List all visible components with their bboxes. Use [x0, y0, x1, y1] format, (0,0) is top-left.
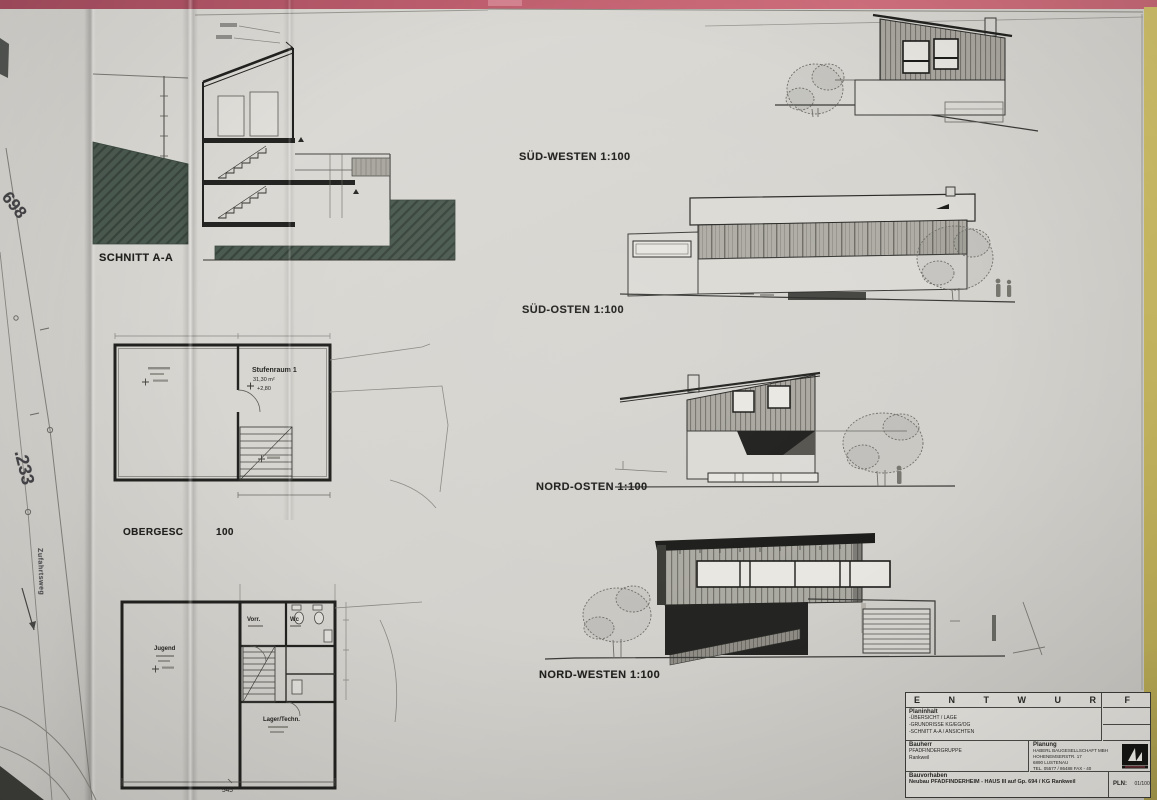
plan-number-label: PLN: — [1110, 780, 1127, 787]
elevation-label-nord-osten: NORD-OSTEN 1:100 — [536, 481, 648, 493]
elevation-label-nord-westen: NORD-WESTEN 1:100 — [539, 669, 660, 681]
client-label: Bauherr — [906, 741, 1028, 748]
plan-content-line: -SCHNITT A-A / ANSICHTEN — [906, 729, 1101, 736]
dimension-545: 545 — [222, 787, 233, 794]
elevation-nord-westen — [545, 525, 1045, 670]
tree-sketch — [786, 64, 844, 117]
elevation-sued-westen — [770, 5, 1040, 140]
plan-content-cell: Planinhalt -ÜBERSICHT / LAGE -GRUNDRISSE… — [906, 708, 1102, 741]
level-marker-icon — [298, 137, 359, 194]
client-city: Rankweil — [906, 755, 1028, 762]
room-level: +2,80 — [257, 386, 271, 392]
plan-number-value: 01/100 — [1131, 781, 1149, 787]
project-label: Bauvorhaben — [906, 772, 1108, 779]
tree-sketch — [843, 413, 923, 486]
plan-content-right-cell — [1103, 708, 1150, 741]
section-label: SCHNITT A-A — [99, 252, 173, 264]
planner-cell: Planung HABERL BAUGESELLSCHAFT MBH HOHEN… — [1030, 741, 1150, 772]
photographed-plan-sheet: 698 .233 Zufahrtsweg — [0, 0, 1157, 800]
plan-number-cell: PLN: 01/100 — [1110, 772, 1150, 797]
upper-plan-scale: 100 — [216, 527, 234, 538]
title-block-header-right-cell — [1103, 693, 1150, 708]
room-name-lager: Lager/Techn. — [263, 717, 300, 723]
client-name: PFADFINDERGRUPPE — [906, 748, 1028, 755]
title-block-header: E N T W U R F — [906, 693, 1102, 708]
elevation-nord-osten — [615, 365, 955, 495]
plan-content-line: -ÜBERSICHT / LAGE — [906, 715, 1101, 722]
plan-content-line: -GRUNDRISSE KG/EG/OG — [906, 722, 1101, 729]
garage-door — [863, 609, 930, 653]
room-name-stufenraum: Stufenraum 1 — [252, 367, 297, 374]
project-title: Neubau PFADFINDERHEIM - HAUS III auf Gp.… — [906, 779, 1108, 786]
elevation-label-sued-osten: SÜD-OSTEN 1:100 — [522, 304, 624, 316]
elevation-label-sued-westen: SÜD-WESTEN 1:100 — [519, 151, 631, 163]
ribbon-window — [697, 561, 890, 587]
plan-content-label: Planinhalt — [906, 708, 1101, 715]
haberl-logo — [1122, 744, 1148, 769]
room-name-vorraum: Vorr. — [247, 617, 261, 623]
person-figure — [897, 466, 902, 484]
room-name-wc: Wc — [290, 617, 300, 623]
elevation-sued-osten — [620, 185, 1015, 310]
section-drawing — [90, 12, 460, 262]
upper-floor-plan-drawing: Stufenraum 1 31,30 m² +2,80 — [90, 330, 460, 530]
ground-floor-plan-drawing: Vorr. Wc Lager/Techn. Jugend 545 — [100, 580, 430, 800]
level-marker-icon — [247, 383, 254, 390]
client-cell: Bauherr PFADFINDERGRUPPE Rankweil — [906, 741, 1029, 772]
room-name-jugend: Jugend — [154, 646, 176, 652]
tree-sketch — [583, 586, 651, 658]
upper-plan-label: OBERGESC — [123, 527, 183, 538]
survey-arrow-icon — [22, 588, 36, 630]
title-block: E N T W U R F Planinhalt -ÜBERSICHT / LA… — [905, 692, 1151, 798]
room-area: 31,30 m² — [253, 377, 275, 383]
project-cell: Bauvorhaben Neubau PFADFINDERHEIM - HAUS… — [906, 772, 1109, 797]
person-figure — [996, 279, 1012, 297]
